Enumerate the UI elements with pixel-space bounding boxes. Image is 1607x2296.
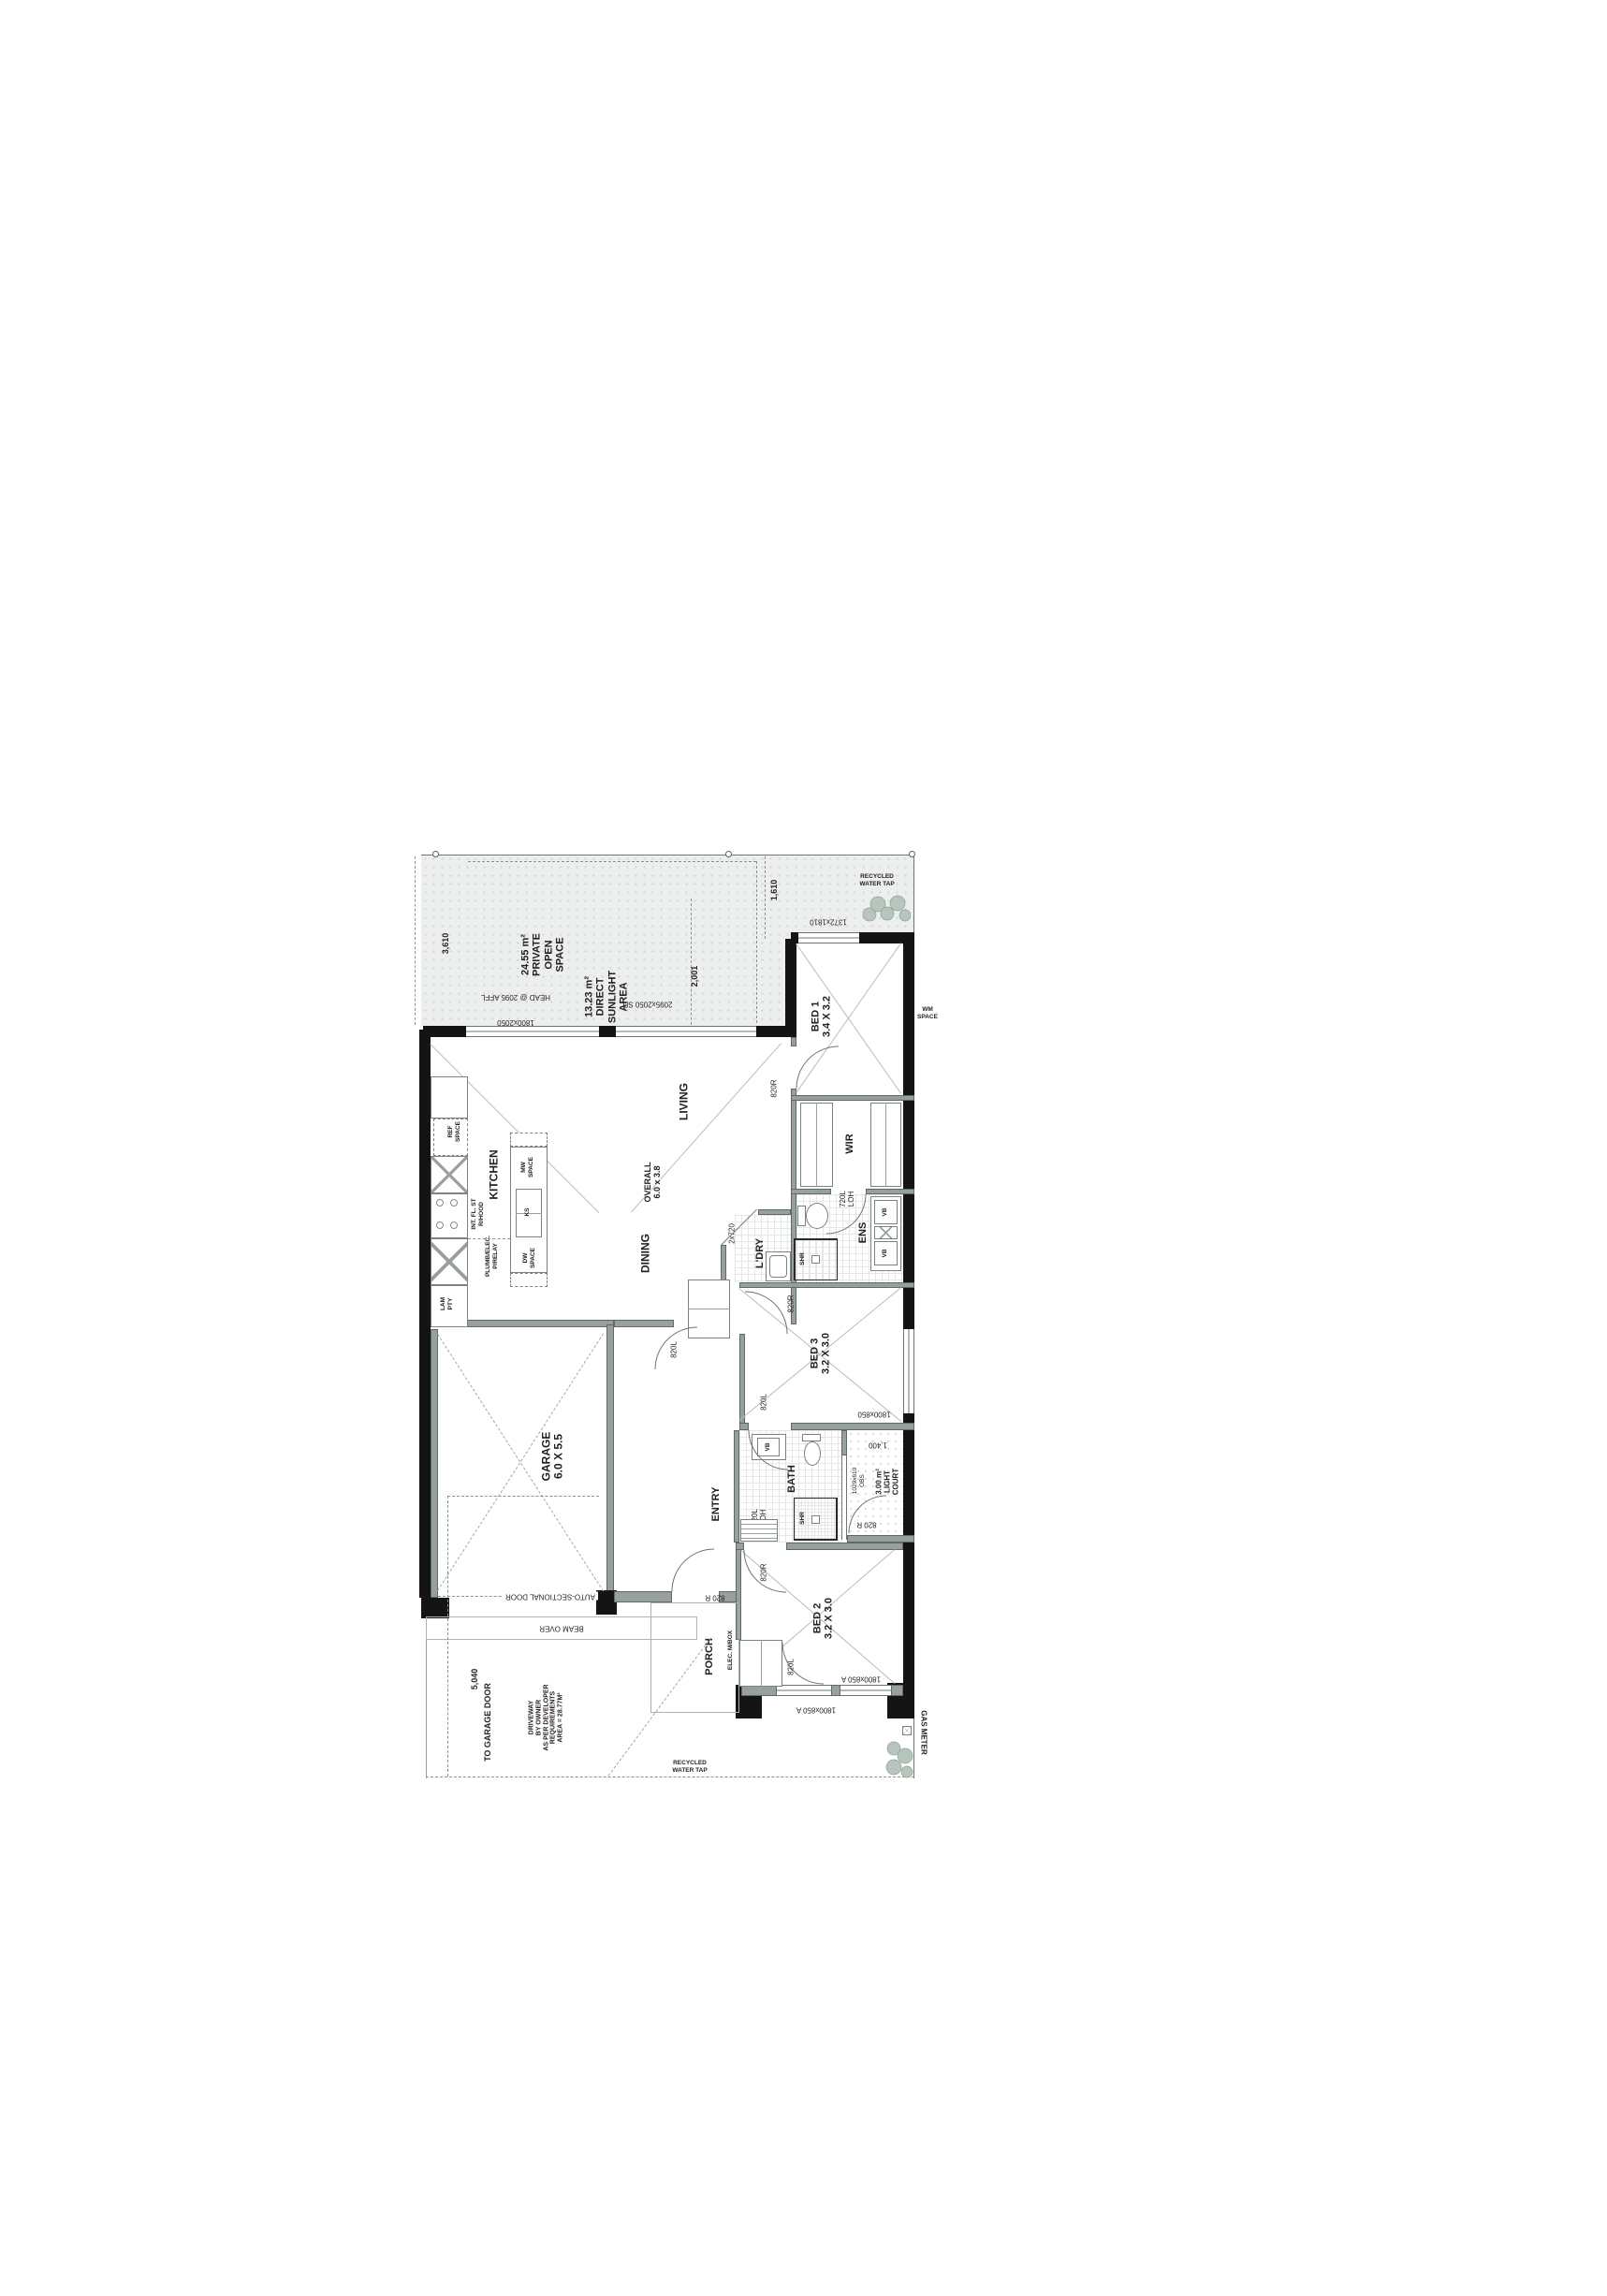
dining-label: DINING (639, 1234, 651, 1273)
direct-sunlight-label: 13.23 m² DIRECT SUNLIGHT AREA (583, 971, 629, 1023)
door-arc (655, 1327, 697, 1369)
light-court-label: 3.00 m² LIGHT COURT (876, 1469, 901, 1495)
rangehood-label: INT. FL. ST R/HOOD (471, 1198, 486, 1229)
lam-pantry-label: LAM PTY (440, 1297, 455, 1310)
floor-plan-page: { "rooms": { "living": "LIVING", "dining… (0, 0, 1607, 2296)
shower-label: SHR (799, 1252, 807, 1265)
gas-meter-label: GAS METER (919, 1710, 928, 1755)
window-living-size: 1800x2050 (481, 1017, 550, 1026)
kitchen-sink-label: KS (524, 1207, 532, 1216)
elec-meterbox-label: ELEC. M/BOX (727, 1631, 735, 1670)
kitchen-dash (468, 1238, 510, 1239)
door-arc (672, 1549, 714, 1591)
obscure-window-label: 1029x610 OBS (852, 1468, 867, 1495)
window-bed1-label: 1372x1810 (810, 917, 847, 926)
survey-peg-icon (432, 851, 439, 857)
rail-line (816, 1103, 817, 1187)
laundry-tub-bowl (769, 1255, 787, 1278)
dim-5040: 5,040 (470, 1669, 479, 1690)
beam-over-label: BEAM OVER (536, 1624, 587, 1632)
island-end (510, 1273, 548, 1287)
rail-line (885, 1103, 886, 1187)
door-arc (749, 1430, 788, 1470)
private-open-space-area (421, 855, 914, 940)
shower-drain (811, 1515, 820, 1524)
burner-icon (450, 1199, 458, 1206)
wall (859, 932, 914, 943)
sliding-door (616, 1026, 756, 1037)
window-bed2 (777, 1685, 831, 1696)
kitchen-bench (431, 1076, 468, 1119)
door-arc (796, 1046, 839, 1089)
to-garage-door-label: TO GARAGE DOOR (483, 1683, 492, 1762)
driveway-edge (447, 1496, 448, 1777)
door-820r-entry: 820 R (705, 1593, 724, 1601)
boundary-bottom (426, 1777, 914, 1777)
window-bed1 (798, 932, 859, 943)
bed1-label: BED 1 3.4 X 3.2 (811, 996, 834, 1037)
door-arc (745, 1292, 787, 1334)
dim-2001: 2,001 (690, 966, 699, 987)
door-arc (826, 1194, 866, 1234)
pantry-cabinet (431, 1238, 468, 1285)
shower-label: SHR (799, 1512, 807, 1525)
door-arc (782, 1643, 824, 1684)
wall (891, 1685, 903, 1696)
toilet-icon (804, 1441, 821, 1466)
bed2-label: BED 2 3.2 X 3.0 (812, 1598, 836, 1639)
window-bed3-label: 1800x850 (857, 1410, 890, 1418)
gas-meter-icon (902, 1726, 912, 1735)
private-open-space-label: 24.55 m² PRIVATE OPEN SPACE (519, 933, 565, 976)
vanity-basin-label: VB (882, 1249, 889, 1257)
wall (786, 1543, 903, 1550)
dim-3610: 3,610 (441, 933, 450, 955)
dim-line (426, 1640, 427, 1778)
ref-space-label: REF SPACE (447, 1121, 462, 1142)
wall-corner (421, 1598, 449, 1618)
dim-line-3610 (415, 856, 416, 1025)
floor-plan: 3,610 24.55 m² PRIVATE OPEN SPACE 13.23 … (267, 819, 950, 1783)
dim-1400: 1,400 (869, 1440, 887, 1449)
window-slider-label: 2095x2050 SD (623, 1000, 673, 1008)
porch-slab (650, 1602, 739, 1713)
wall (791, 1423, 914, 1430)
shrub-icon (862, 894, 911, 926)
wall (599, 1026, 616, 1037)
door-820r-bed3: 820R (788, 1294, 796, 1312)
burner-icon (450, 1221, 458, 1229)
window-bed3 (903, 1329, 914, 1413)
linen-shelves (740, 1519, 778, 1542)
toilet-tank (802, 1434, 821, 1441)
wall (903, 943, 914, 1329)
plumb-relay-label: PLUMB/ELEC. P/RELAY (485, 1236, 500, 1277)
recycled-water-tap-label: RECYCLED WATER TAP (859, 873, 894, 888)
door-820r-bed1: 820R (771, 1079, 780, 1097)
auto-sectional-door-label: AUTO-SECTIONAL DOOR (503, 1592, 598, 1601)
wall (791, 1095, 914, 1101)
driveway-note: DRIVEWAY BY OWNER AS PER DEVELOPER REQUI… (528, 1684, 564, 1750)
dw-space-label: DW SPACE (522, 1248, 537, 1268)
wall (791, 932, 798, 943)
vanity-cabinet (874, 1226, 898, 1239)
pantry-cabinet (431, 1156, 468, 1193)
driveway-edge (447, 1496, 599, 1497)
dim-line-1610 (765, 856, 766, 939)
shrub-icon (884, 1741, 916, 1778)
wall (606, 1324, 614, 1596)
sunlight-area-border-top (468, 861, 756, 862)
window-bed2-label: 1800x850 A (841, 1674, 881, 1683)
survey-peg-icon (725, 851, 732, 857)
recycled-water-tap-label: RECYCLED WATER TAP (672, 1760, 707, 1775)
wall (614, 1591, 672, 1602)
sunlight-area-border-right (756, 861, 757, 1023)
door-820l-bath: 820L (761, 1394, 769, 1411)
dim-1610: 1,610 (769, 880, 779, 901)
robe-rail-line (688, 1309, 730, 1309)
window-bed2 (840, 1685, 891, 1696)
overall-label: OVERALL 6.0 x 3.8 (643, 1162, 662, 1202)
toilet-tank (797, 1206, 806, 1226)
toilet-icon (806, 1203, 828, 1229)
vanity-basin-label: VB (882, 1207, 889, 1216)
bed3-label: BED 3 3.2 X 3.0 (810, 1333, 833, 1374)
wall (739, 1282, 914, 1288)
entry-label: ENTRY (710, 1487, 722, 1522)
survey-peg-icon (909, 851, 915, 857)
living-label: LIVING (678, 1083, 690, 1120)
wall (739, 1423, 749, 1430)
robe-rail-line (761, 1640, 762, 1687)
wall (791, 1037, 796, 1046)
mw-space-label: MW SPACE (520, 1157, 535, 1177)
garage-label: GARAGE 6.0 X 5.5 (541, 1432, 566, 1482)
wall (903, 1413, 914, 1685)
wall (614, 1320, 674, 1327)
wall (785, 939, 796, 1037)
kitchen-label: KITCHEN (488, 1149, 500, 1199)
boundary-top (421, 855, 914, 856)
shower-drain (811, 1255, 820, 1264)
door-arc (849, 1496, 886, 1533)
burner-icon (436, 1221, 444, 1229)
garage-wall-lining (431, 1329, 438, 1598)
island-end (510, 1133, 548, 1147)
wall (831, 1685, 840, 1696)
window-bed2-label: 1800x850 A (796, 1705, 836, 1714)
dim-line-2001 (691, 899, 692, 1025)
door-arc (744, 1550, 786, 1592)
window-living-head: HEAD @ 2095 AFFL (481, 992, 550, 1001)
window-living (466, 1026, 599, 1037)
burner-icon (436, 1199, 444, 1206)
wall (419, 1030, 431, 1598)
wm-space-label: WM SPACE (917, 1006, 938, 1021)
ldry-label: L'DRY (754, 1238, 766, 1268)
wall (736, 1543, 744, 1550)
wir-label: WIR (844, 1133, 855, 1153)
wall (847, 1535, 914, 1543)
